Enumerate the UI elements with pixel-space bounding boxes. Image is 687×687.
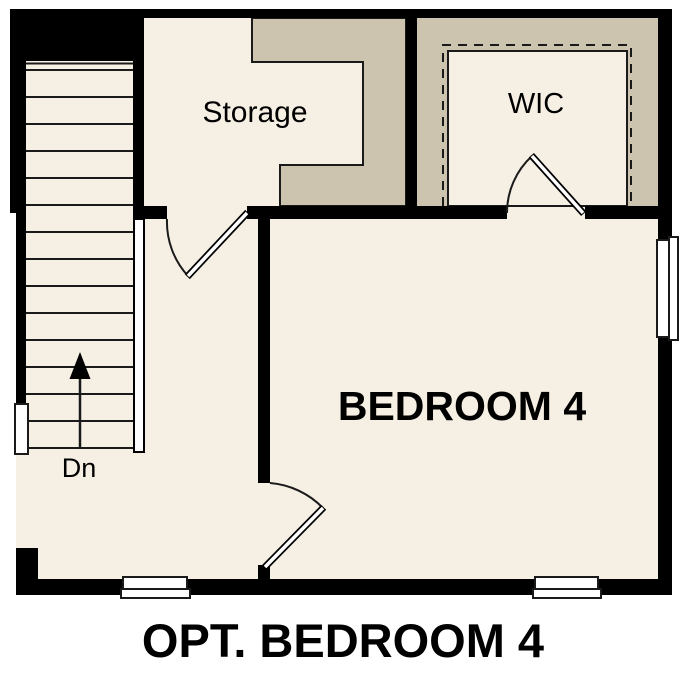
bottom-right-window-sill xyxy=(533,589,601,598)
wall-left-mid xyxy=(16,213,26,405)
wall-storage-door-stub xyxy=(133,206,167,219)
wall-storage-wic-divider xyxy=(406,9,417,219)
floor-plan: Storage WIC BEDROOM 4 Dn OPT. BEDROOM 4 xyxy=(0,0,687,687)
wic-label: WIC xyxy=(508,88,564,120)
bottom-left-window-inner xyxy=(123,577,187,589)
storage-label: Storage xyxy=(202,96,307,129)
right-window-inner xyxy=(657,240,669,337)
bottom-right-window-inner xyxy=(535,577,598,589)
bottom-left-window-sill xyxy=(121,589,190,598)
wall-wic-bottom-right xyxy=(585,206,658,219)
wall-left-upper xyxy=(10,9,26,213)
wall-left-bottom-stub xyxy=(16,548,38,579)
stairs-down-label: Dn xyxy=(62,453,97,483)
wall-hall-bedroom xyxy=(258,219,270,483)
wic-inner-floor xyxy=(448,51,627,206)
wall-stairwell-header xyxy=(10,9,144,61)
wall-stair-right xyxy=(133,61,144,219)
left-window xyxy=(15,404,28,454)
right-window-sill xyxy=(669,237,678,340)
bedroom-label: BEDROOM 4 xyxy=(338,383,587,429)
stair-railing xyxy=(134,219,144,452)
wall-hall-top xyxy=(247,206,507,219)
plan-title: OPT. BEDROOM 4 xyxy=(142,614,544,667)
